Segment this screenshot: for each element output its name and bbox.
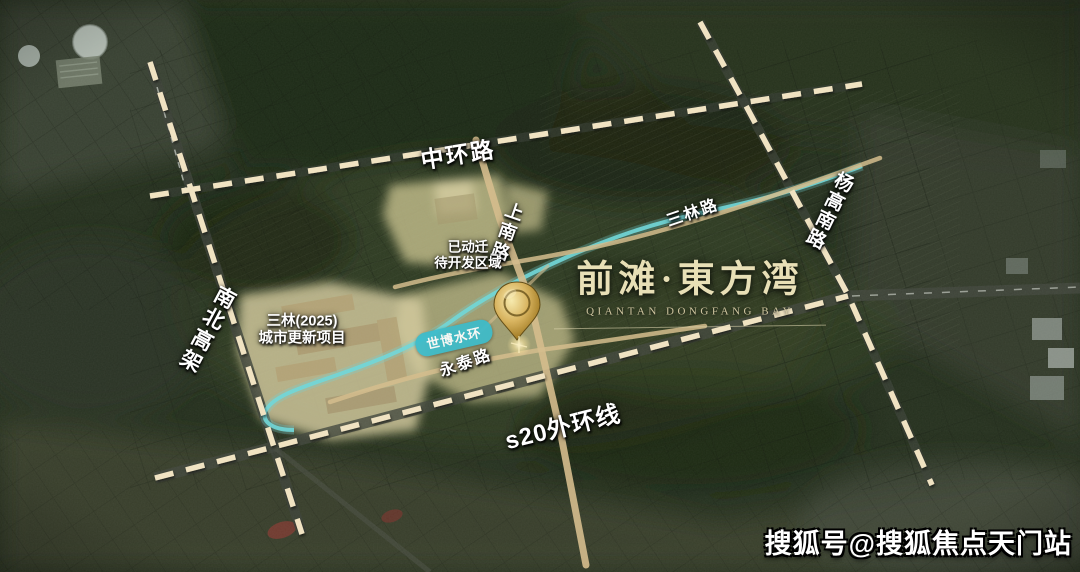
sanlin2025-line2: 城市更新项目 bbox=[259, 330, 346, 347]
sanlin2025-line1: 三林(2025) bbox=[259, 313, 346, 330]
location-map: 中环路 上南路 三林路 杨高南路 南北高架 s20外环线 永泰路 已动迁 待开发… bbox=[0, 0, 1080, 572]
sohu-watermark: 搜狐号@搜狐焦点天门站 bbox=[765, 522, 1072, 561]
vignette bbox=[0, 0, 1080, 572]
area-label-redevelopment: 已动迁 待开发区域 bbox=[434, 239, 502, 270]
redevelopment-line1: 已动迁 bbox=[434, 239, 502, 255]
satellite-basemap bbox=[0, 0, 1080, 572]
redevelopment-line2: 待开发区域 bbox=[434, 255, 502, 271]
area-label-sanlin2025: 三林(2025) 城市更新项目 bbox=[259, 313, 346, 346]
